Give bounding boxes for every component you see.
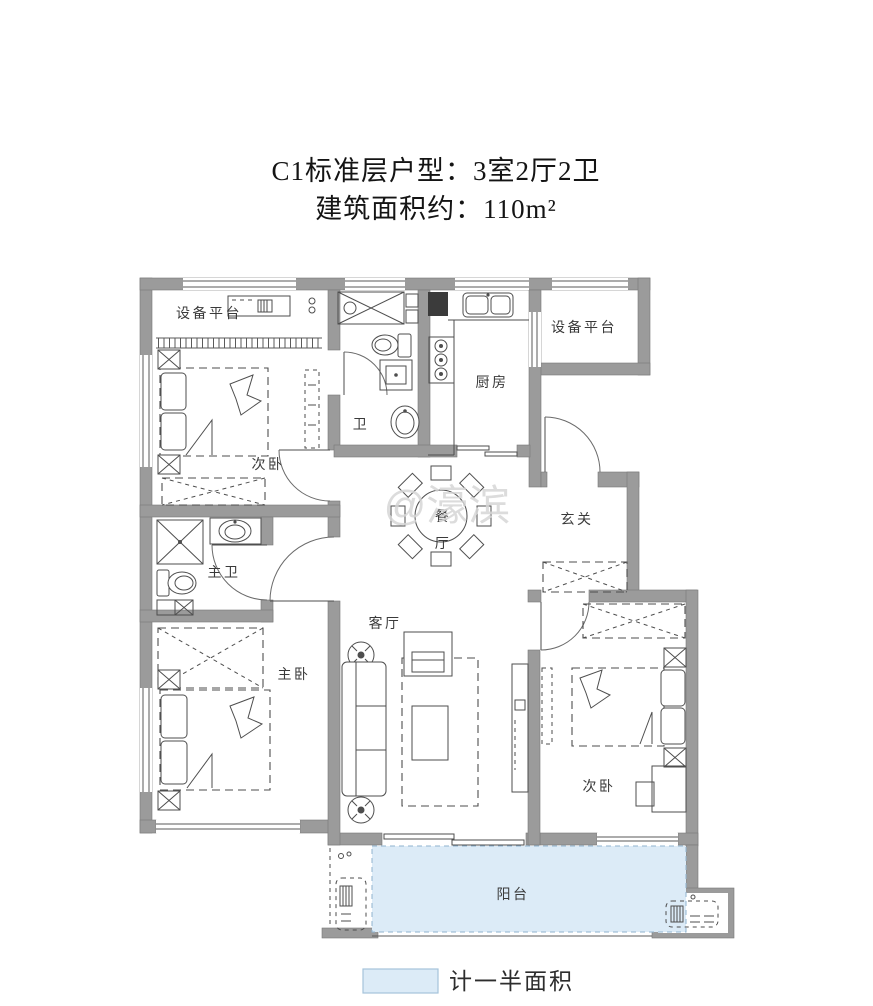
door-bathroom — [344, 352, 387, 395]
armchair-icon — [404, 632, 452, 676]
label-bathroom: 卫 — [353, 416, 370, 432]
bed-icon-master — [158, 670, 270, 810]
room-labels: 设备平台 设备平台 次卧 卫 厨房 玄关 厅 主卫 主卧 客厅 次卧 阳台 — [176, 305, 617, 902]
ac-platform-left — [330, 848, 366, 930]
tv-cabinet-icon-bedroom — [542, 668, 552, 744]
floorplan-page: C1标准层户型：3室2厅2卫 建筑面积约：110m² — [0, 0, 873, 1006]
floor-lamp-icon-bottom — [348, 797, 374, 823]
label-foyer: 玄关 — [561, 511, 594, 527]
floor-plan: C1标准层户型：3室2厅2卫 建筑面积约：110m² — [0, 0, 873, 1006]
legend-label: 计一半面积 — [449, 968, 574, 994]
window-south-bedroom-right — [597, 833, 678, 845]
sink-icon-master — [210, 518, 261, 544]
tv-stand-icon — [512, 664, 528, 792]
washing-machine-icon — [338, 292, 418, 324]
kitchen-sink-icon — [463, 293, 513, 317]
label-equipment-platform-left: 设备平台 — [176, 305, 242, 321]
label-master-bathroom: 主卫 — [208, 564, 241, 580]
label-balcony: 阳台 — [497, 886, 530, 902]
toilet-icon-bath — [372, 334, 411, 357]
legend-swatch — [363, 969, 438, 993]
coffee-table-icon — [412, 706, 448, 760]
window-layer — [140, 278, 678, 936]
door-bedroom-top-left — [279, 450, 330, 501]
legend: 计一半面积 — [363, 968, 574, 994]
label-equipment-platform-right: 设备平台 — [551, 319, 617, 335]
window-top-kitchen — [455, 278, 529, 290]
shower-icon-bath — [380, 360, 412, 390]
window-top-platform-right — [552, 278, 628, 290]
balcony-sliding-door — [384, 834, 524, 845]
toilet-icon-master — [157, 570, 196, 596]
wardrobe-icon-top-left — [162, 478, 265, 505]
door-bedroom-bottom-right — [541, 602, 589, 650]
label-bedroom-bottom-right: 次卧 — [583, 778, 616, 794]
watermark-text: @濠滨 — [384, 482, 511, 529]
window-south-master — [156, 820, 300, 833]
label-master-bedroom: 主卧 — [278, 666, 311, 682]
door-entry — [545, 417, 600, 472]
label-living-room: 客厅 — [369, 615, 402, 631]
window-west-master — [140, 688, 152, 792]
window-top-bath — [345, 278, 405, 290]
shower-icon-master — [157, 520, 203, 564]
window-kitchen-east — [529, 312, 541, 367]
kitchen-sliding-door — [457, 446, 517, 456]
fridge-icon — [428, 292, 448, 316]
bed-icon-bottom-right — [572, 648, 686, 767]
cabinet-icon-foyer — [543, 562, 627, 592]
desk-icon-top-left — [305, 370, 319, 448]
plan-title-line1: C1标准层户型：3室2厅2卫 — [271, 156, 600, 186]
sofa-icon — [342, 662, 386, 796]
desk-icon-bottom-right — [636, 766, 686, 812]
label-kitchen: 厨房 — [476, 374, 509, 390]
door-master-suite-corridor — [270, 537, 334, 601]
wardrobe-icon-bottom-right — [583, 604, 685, 638]
plan-title-line2: 建筑面积约：110m² — [315, 194, 557, 224]
title-block: C1标准层户型：3室2厅2卫 建筑面积约：110m² — [271, 156, 600, 224]
label-dining-char2: 厅 — [435, 535, 452, 551]
window-west-bedroom-top — [140, 355, 152, 467]
stove-icon — [429, 337, 454, 383]
label-bedroom-top-left: 次卧 — [252, 456, 285, 472]
sink-icon-bath — [391, 406, 419, 438]
window-top-platform-left — [183, 278, 296, 290]
